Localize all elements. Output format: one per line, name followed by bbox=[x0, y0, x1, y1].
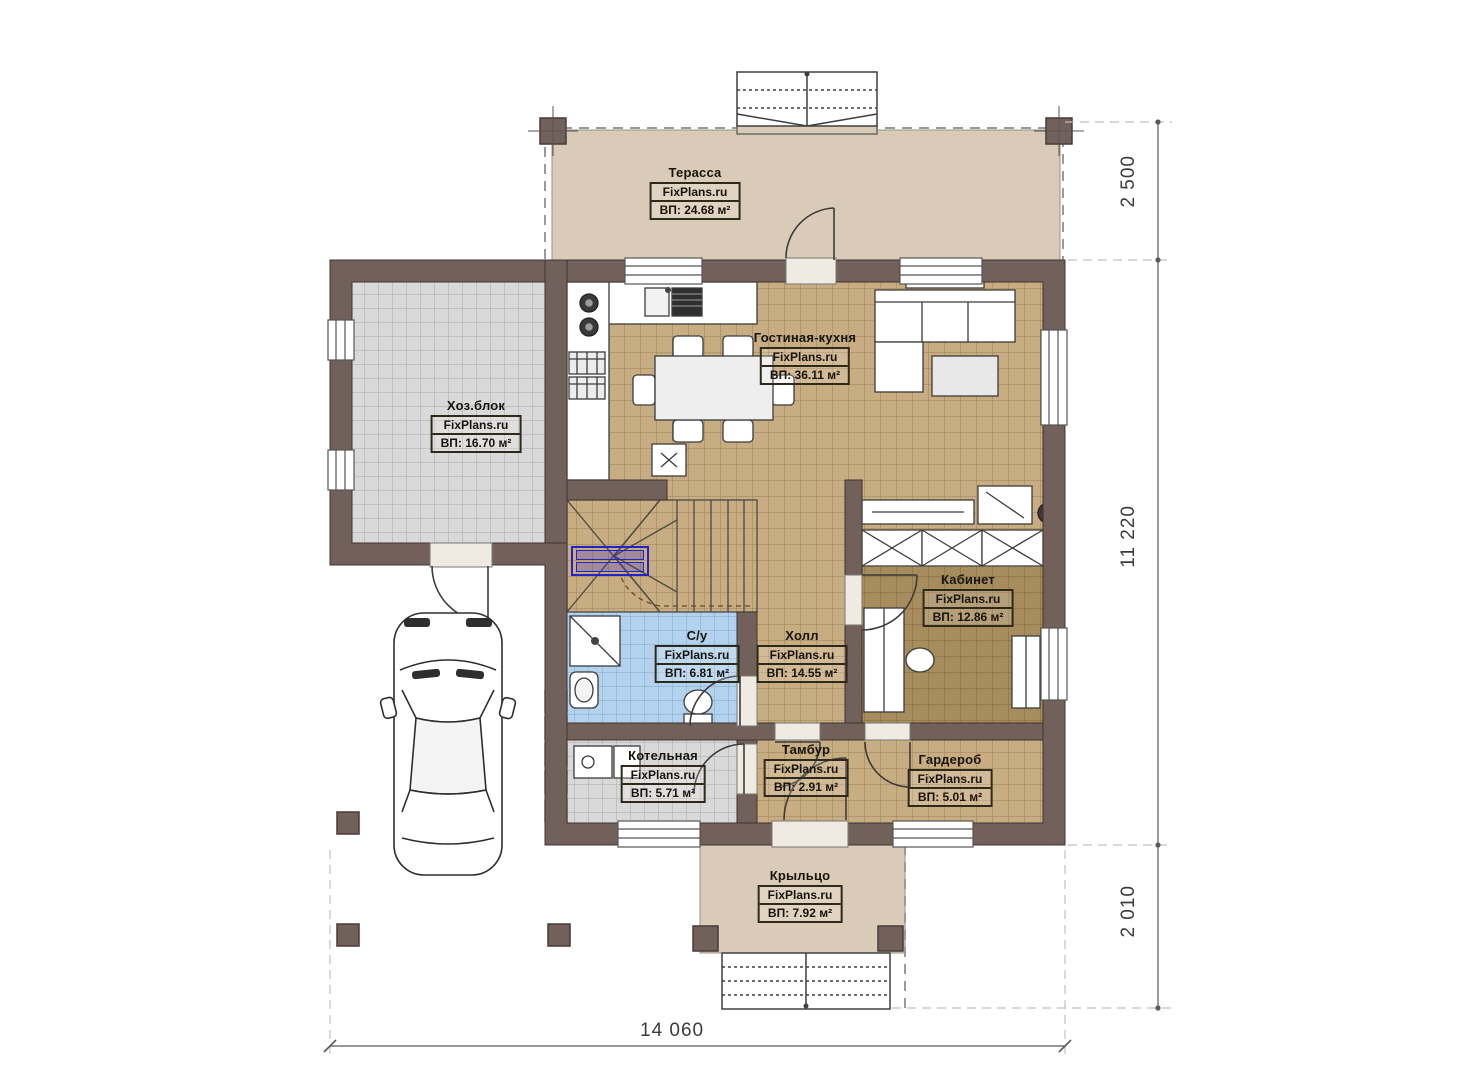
room-name: С/у bbox=[655, 628, 740, 643]
dimension-house-height: 11 220 bbox=[1118, 505, 1140, 568]
room-info-box: FixPlans.ru ВП: 36.11 м² bbox=[760, 347, 850, 385]
brand-watermark: FixPlans.ru bbox=[910, 771, 991, 789]
brand-watermark: FixPlans.ru bbox=[652, 184, 739, 202]
stairs-annotation-line bbox=[576, 562, 644, 572]
room-area: ВП: 5.71 м² bbox=[623, 785, 704, 801]
room-area: ВП: 36.11 м² bbox=[762, 367, 848, 383]
room-label-living-kitchen: Гостиная-кухня FixPlans.ru ВП: 36.11 м² bbox=[754, 330, 856, 385]
room-name: Тамбур bbox=[764, 742, 849, 757]
stairs-annotation bbox=[571, 546, 649, 576]
room-area: ВП: 6.81 м² bbox=[657, 665, 738, 681]
room-area: ВП: 24.68 м² bbox=[652, 202, 739, 218]
car bbox=[380, 613, 516, 875]
room-name: Хоз.блок bbox=[431, 398, 522, 413]
terrace-area bbox=[528, 106, 1084, 262]
room-area: ВП: 16.70 м² bbox=[433, 435, 520, 451]
floor-plan-drawing bbox=[0, 0, 1473, 1080]
room-area: ВП: 7.92 м² bbox=[760, 905, 841, 921]
dimension-terrace-depth: 2 500 bbox=[1118, 155, 1140, 208]
brand-watermark: FixPlans.ru bbox=[759, 647, 846, 665]
brand-watermark: FixPlans.ru bbox=[760, 887, 841, 905]
room-area: ВП: 14.55 м² bbox=[759, 665, 846, 681]
room-label-hall: Холл FixPlans.ru ВП: 14.55 м² bbox=[757, 628, 848, 683]
room-info-box: FixPlans.ru ВП: 14.55 м² bbox=[757, 645, 848, 683]
dimension-total-width: 14 060 bbox=[640, 1020, 704, 1042]
room-label-terrace: Терасса FixPlans.ru ВП: 24.68 м² bbox=[650, 165, 741, 220]
room-info-box: FixPlans.ru ВП: 7.92 м² bbox=[758, 885, 843, 923]
room-name: Крыльцо bbox=[758, 868, 843, 883]
room-info-box: FixPlans.ru ВП: 12.86 м² bbox=[923, 589, 1014, 627]
dimension-porch-depth: 2 010 bbox=[1118, 885, 1140, 938]
terrace-stairs bbox=[737, 72, 877, 127]
room-info-box: FixPlans.ru ВП: 5.71 м² bbox=[621, 765, 706, 803]
room-area: ВП: 12.86 м² bbox=[925, 609, 1012, 625]
room-label-porch: Крыльцо FixPlans.ru ВП: 7.92 м² bbox=[758, 868, 843, 923]
brand-watermark: FixPlans.ru bbox=[766, 761, 847, 779]
room-area: ВП: 2.91 м² bbox=[766, 779, 847, 795]
room-info-box: FixPlans.ru ВП: 5.01 м² bbox=[908, 769, 993, 807]
stairs-annotation-line bbox=[576, 550, 644, 560]
floor-plan-canvas: Терасса FixPlans.ru ВП: 24.68 м² Хоз.бло… bbox=[0, 0, 1473, 1080]
room-area: ВП: 5.01 м² bbox=[910, 789, 991, 805]
room-name: Кабинет bbox=[923, 572, 1014, 587]
room-info-box: FixPlans.ru ВП: 24.68 м² bbox=[650, 182, 741, 220]
room-label-boiler: Котельная FixPlans.ru ВП: 5.71 м² bbox=[621, 748, 706, 803]
room-label-vestibule: Тамбур FixPlans.ru ВП: 2.91 м² bbox=[764, 742, 849, 797]
brand-watermark: FixPlans.ru bbox=[623, 767, 704, 785]
room-label-wardrobe: Гардероб FixPlans.ru ВП: 5.01 м² bbox=[908, 752, 993, 807]
room-info-box: FixPlans.ru ВП: 6.81 м² bbox=[655, 645, 740, 683]
room-name: Гардероб bbox=[908, 752, 993, 767]
storage-cabinets bbox=[862, 530, 1043, 566]
brand-watermark: FixPlans.ru bbox=[433, 417, 520, 435]
room-name: Терасса bbox=[650, 165, 741, 180]
brand-watermark: FixPlans.ru bbox=[657, 647, 738, 665]
brand-watermark: FixPlans.ru bbox=[762, 349, 848, 367]
room-label-bathroom: С/у FixPlans.ru ВП: 6.81 м² bbox=[655, 628, 740, 683]
room-name: Холл bbox=[757, 628, 848, 643]
room-label-cabinet: Кабинет FixPlans.ru ВП: 12.86 м² bbox=[923, 572, 1014, 627]
room-info-box: FixPlans.ru ВП: 2.91 м² bbox=[764, 759, 849, 797]
room-name: Гостиная-кухня bbox=[754, 330, 856, 345]
room-info-box: FixPlans.ru ВП: 16.70 м² bbox=[431, 415, 522, 453]
porch-stairs bbox=[722, 953, 890, 1009]
room-label-hozblok: Хоз.блок FixPlans.ru ВП: 16.70 м² bbox=[431, 398, 522, 453]
room-name: Котельная bbox=[621, 748, 706, 763]
brand-watermark: FixPlans.ru bbox=[925, 591, 1012, 609]
